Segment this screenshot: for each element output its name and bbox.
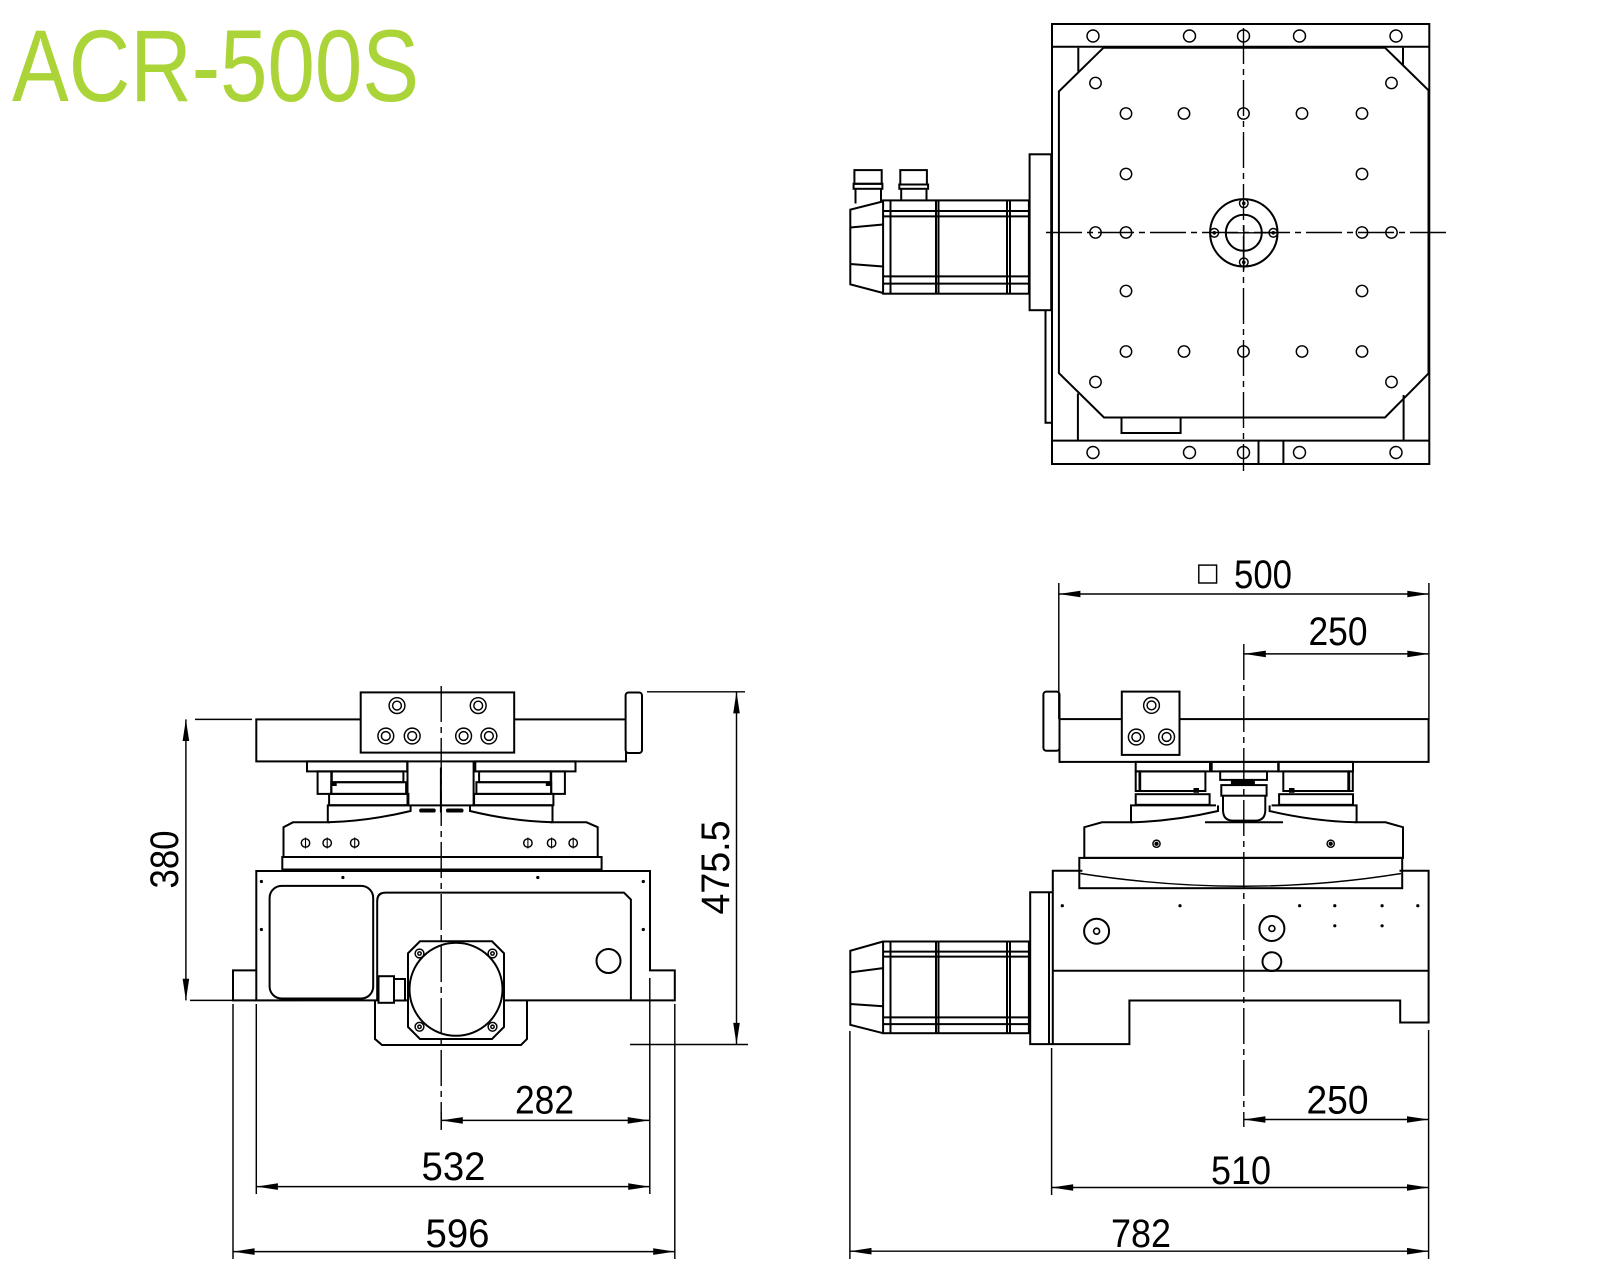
svg-text:510: 510 xyxy=(1211,1149,1271,1193)
svg-text:596: 596 xyxy=(426,1212,490,1256)
svg-text:782: 782 xyxy=(1111,1212,1171,1256)
svg-text:250: 250 xyxy=(1307,1079,1369,1123)
svg-text:380: 380 xyxy=(143,831,187,889)
svg-text:475.5: 475.5 xyxy=(694,821,738,915)
svg-text:ACR-500S: ACR-500S xyxy=(12,9,419,123)
svg-text:250: 250 xyxy=(1309,610,1368,654)
svg-text:282: 282 xyxy=(515,1079,574,1123)
svg-text:500: 500 xyxy=(1234,553,1292,597)
svg-text:532: 532 xyxy=(422,1145,486,1189)
